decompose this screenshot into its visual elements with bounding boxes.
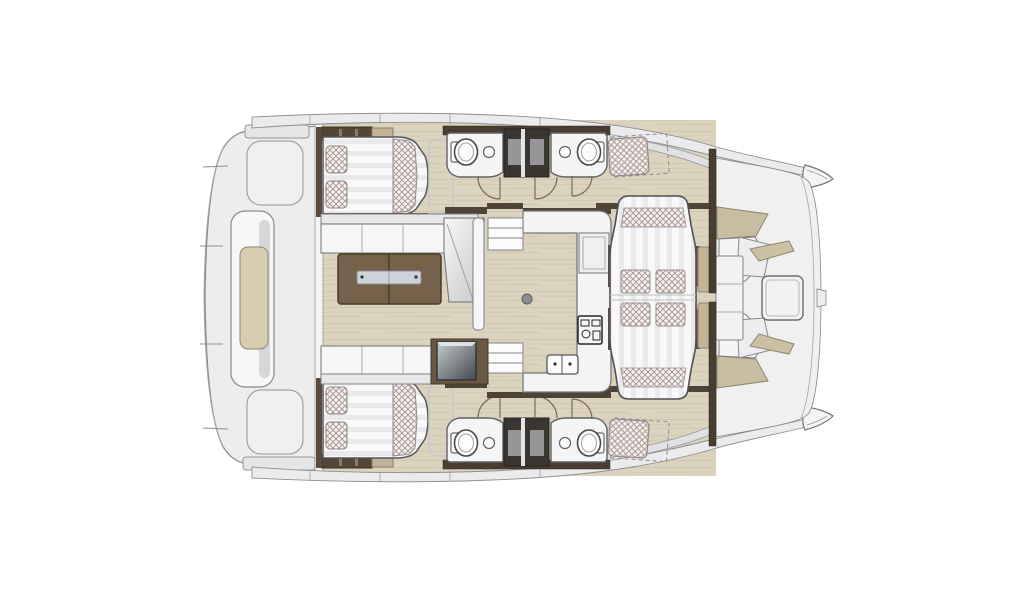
sink [560, 147, 571, 158]
cool-box [431, 339, 488, 384]
pillow [326, 146, 347, 173]
berth-head-wall [316, 127, 322, 217]
floor-fitting [522, 294, 532, 304]
side-ledge [473, 218, 484, 330]
sofa-backrest-aft [321, 374, 433, 384]
cooktop [578, 316, 602, 344]
lounge-armrest [698, 247, 709, 292]
floor-plan-page: Aft deck platform with central sunpad lo… [0, 0, 1024, 600]
center-bench [716, 256, 743, 340]
galley-sink [547, 355, 578, 374]
pillow [326, 181, 347, 208]
companionway-steps-starboard [488, 343, 523, 373]
salon-table [338, 254, 441, 304]
floor-plan-canvas: Aft deck platform with central sunpad lo… [0, 0, 1024, 600]
aft-sunpad-lounge [231, 211, 274, 387]
cockpit-table [762, 276, 803, 320]
aft-deck-platform: Aft deck platform with central sunpad lo… [200, 123, 323, 473]
toilet [578, 139, 605, 165]
salon: Salon with sofa, chaise and folding wood… [321, 214, 488, 384]
double-berth [322, 137, 428, 218]
sink [484, 147, 495, 158]
aft-seat-port [247, 141, 303, 205]
toilet [451, 139, 478, 165]
lounge-armrest [698, 303, 709, 348]
aft-seat-starboard [247, 390, 303, 454]
companionway-steps-port [488, 218, 523, 250]
bow-step [817, 289, 826, 307]
bathrooms [443, 126, 610, 177]
sofa-seat-aft [321, 346, 433, 374]
forward-cockpit: Forward cockpit seating with table [716, 158, 826, 437]
